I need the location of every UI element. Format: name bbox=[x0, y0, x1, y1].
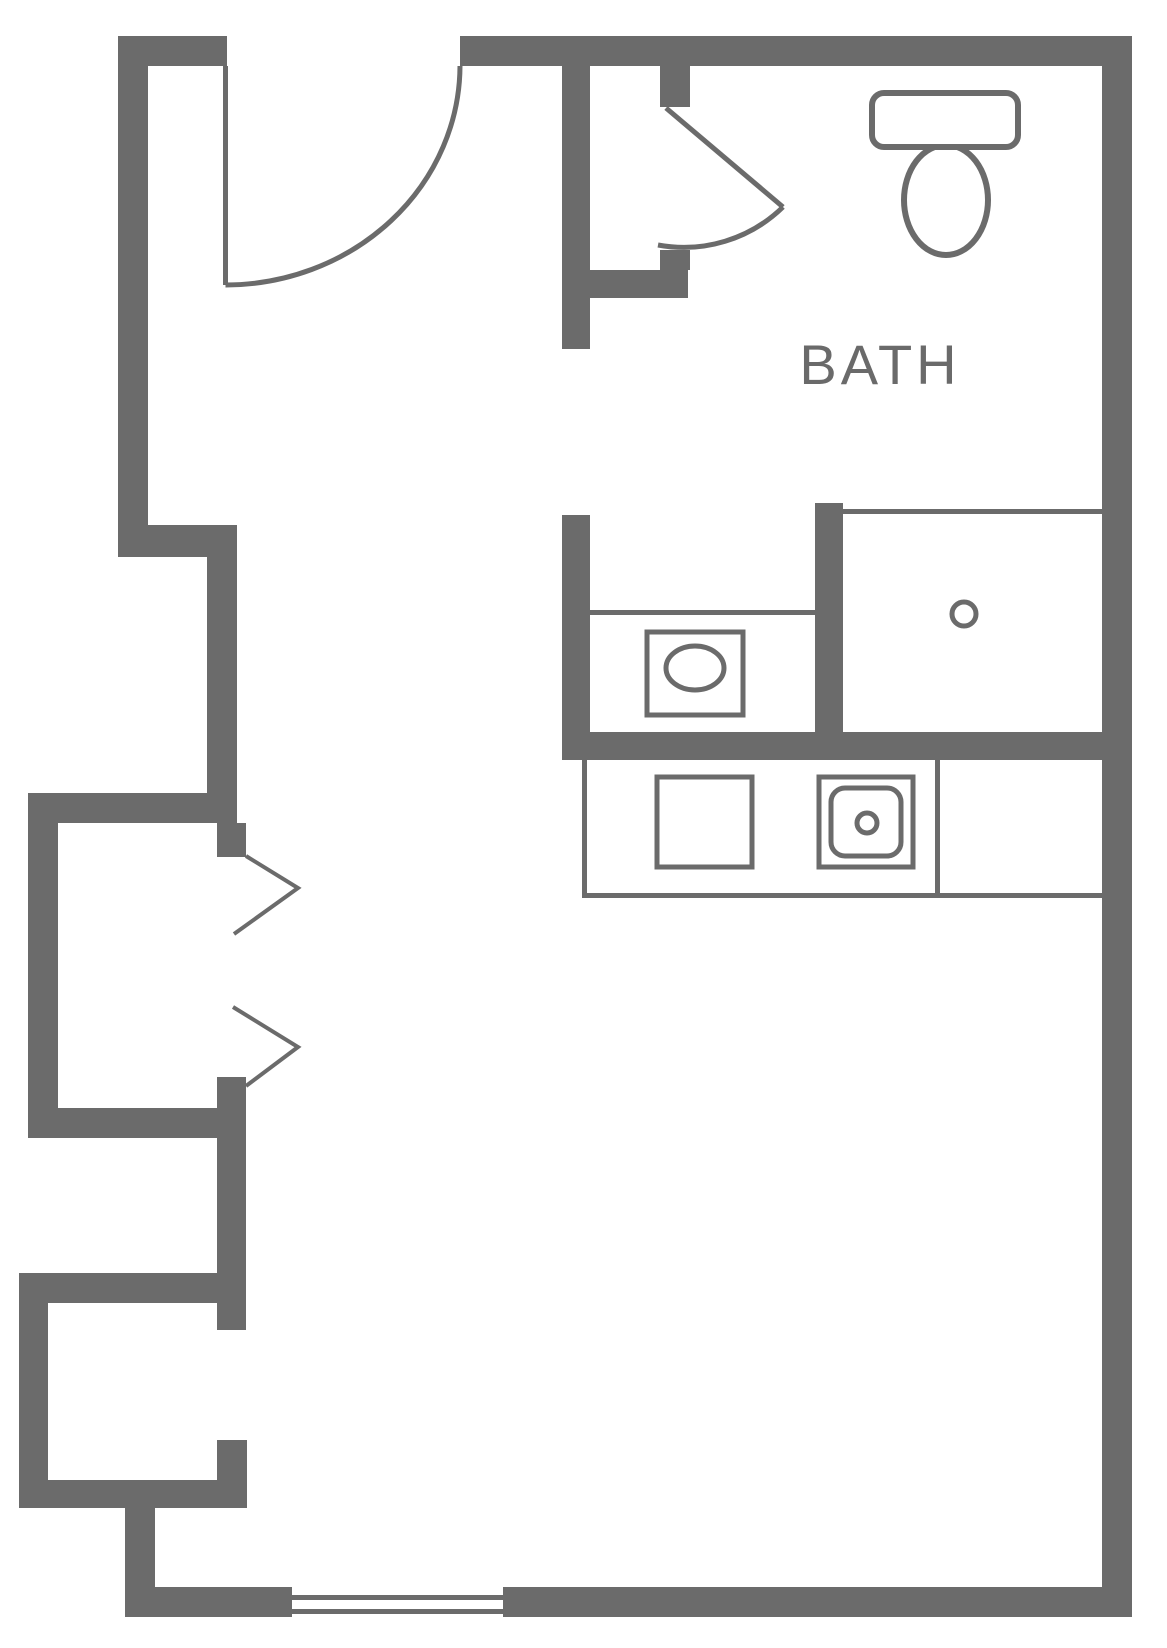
wall-bath-divider-lower bbox=[562, 515, 590, 760]
shower-drain bbox=[952, 602, 976, 626]
wall-left-upper bbox=[118, 36, 148, 557]
floor-plan-canvas: BATH bbox=[0, 0, 1167, 1648]
toilet-symbol bbox=[872, 93, 1018, 255]
vanity-sink-bowl bbox=[666, 646, 724, 690]
wall-closet2-jamb-bottom bbox=[217, 1440, 247, 1480]
wall-left-mid bbox=[28, 793, 58, 1138]
wall-bottom-left bbox=[125, 1587, 292, 1617]
toilet-bowl bbox=[904, 145, 988, 255]
kitchen-sink-faucet bbox=[857, 813, 877, 833]
wall-top-right bbox=[460, 36, 1132, 66]
wall-closet1-bottom bbox=[28, 1108, 237, 1138]
wall-bath-hall-horizontal bbox=[590, 270, 688, 298]
wall-hall-horizontal bbox=[28, 793, 237, 823]
wall-bath-divider-upper bbox=[562, 66, 590, 349]
shower-stall bbox=[843, 512, 1102, 627]
window-line-inner bbox=[292, 1609, 503, 1614]
bath-door-arc bbox=[658, 207, 783, 247]
closet-chevron-top bbox=[234, 856, 298, 934]
wall-kitchen-horizontal bbox=[562, 732, 1132, 760]
wall-right bbox=[1102, 36, 1132, 1617]
cooktop-outline bbox=[657, 777, 752, 867]
toilet-tank bbox=[872, 93, 1018, 147]
kitchen-sink-symbol bbox=[819, 777, 913, 867]
window-line-outer bbox=[292, 1595, 503, 1600]
wall-closet2-top bbox=[19, 1273, 227, 1303]
wall-bath-door-stub-top bbox=[660, 66, 690, 107]
bath-room-label: BATH bbox=[799, 333, 960, 396]
floor-plan: BATH bbox=[0, 0, 1167, 1648]
wall-closet2-bottom bbox=[19, 1480, 247, 1508]
wall-shower-left bbox=[815, 503, 843, 760]
entry-door-arc bbox=[226, 66, 461, 285]
entry-door bbox=[226, 66, 461, 285]
wall-left-lower bbox=[19, 1273, 48, 1508]
walls bbox=[19, 36, 1132, 1617]
cooktop-symbol bbox=[657, 777, 752, 867]
wall-closet1-jamb-top bbox=[217, 823, 246, 857]
wall-bath-door-stub-bottom bbox=[660, 250, 690, 270]
vanity bbox=[590, 613, 815, 716]
bath-door-leaf bbox=[666, 108, 783, 207]
window-symbol bbox=[292, 1595, 503, 1614]
closet-chevron-bottom bbox=[233, 1007, 298, 1086]
wall-closet-right-upper bbox=[207, 525, 237, 793]
wall-bottom-right bbox=[503, 1587, 1132, 1617]
bath-door bbox=[658, 108, 783, 247]
closet-door-chevrons bbox=[233, 856, 298, 1086]
